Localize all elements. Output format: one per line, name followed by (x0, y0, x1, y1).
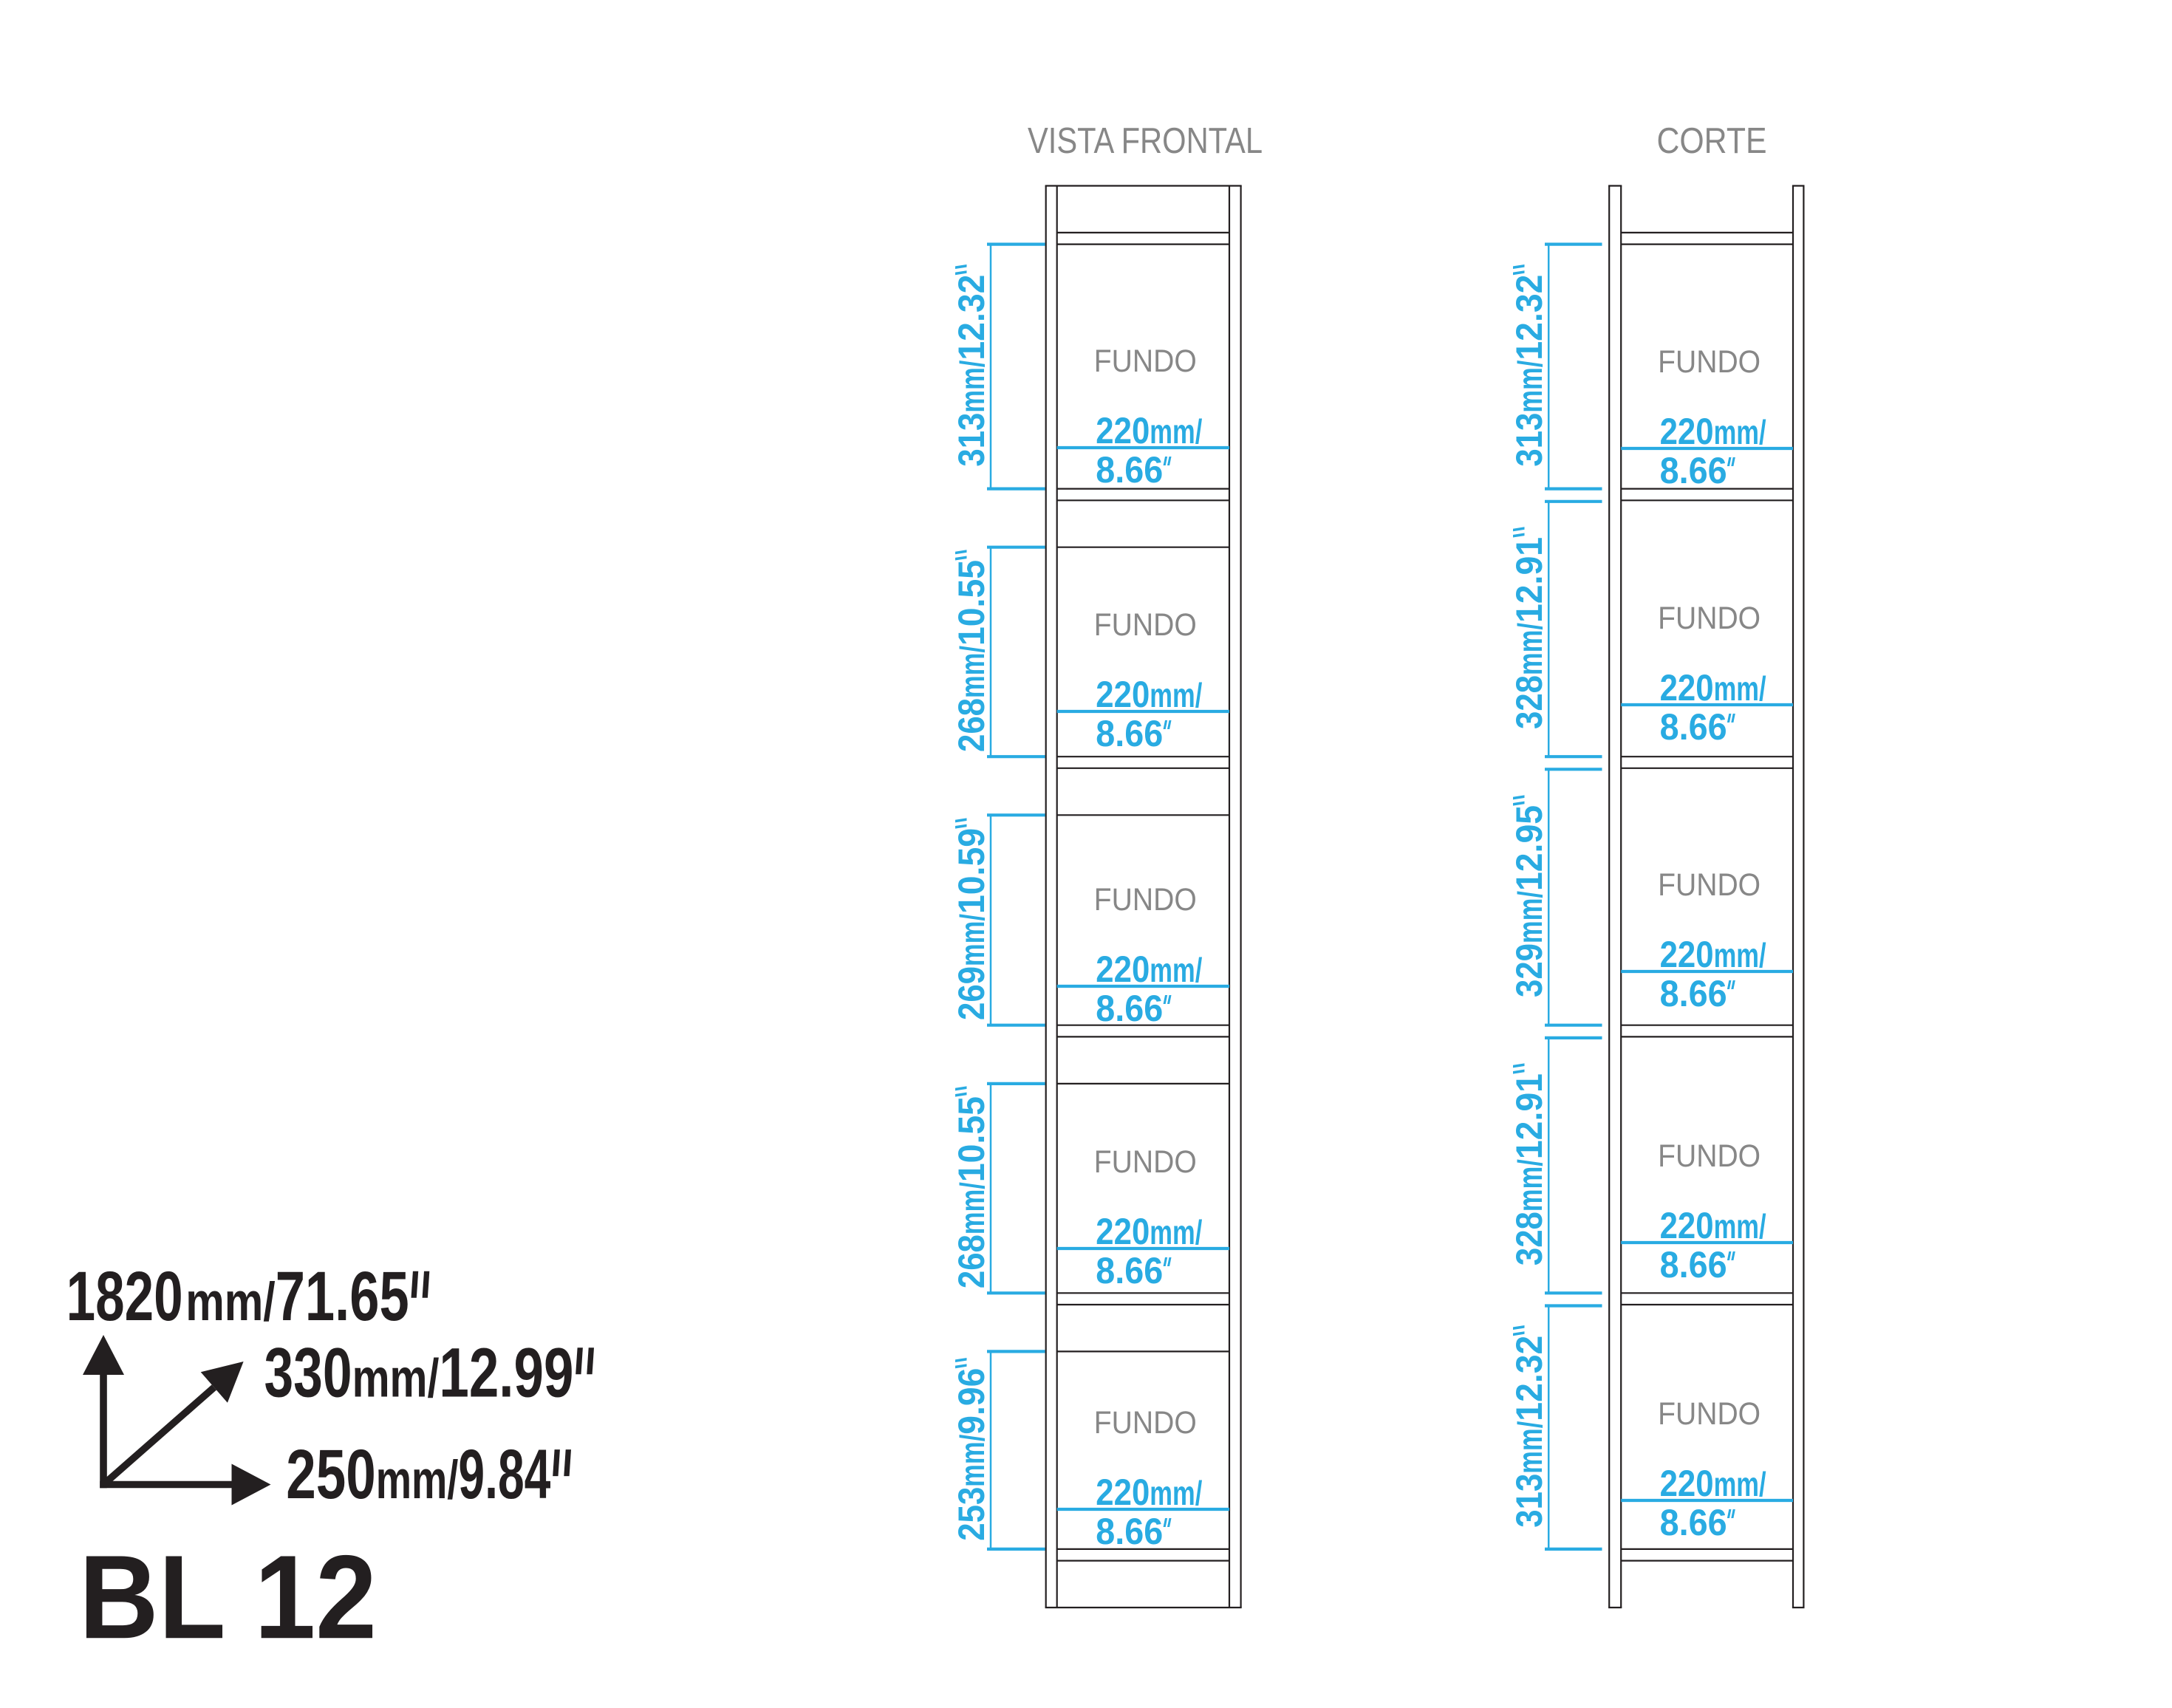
svg-text:220mm/: 220mm/ (1096, 410, 1202, 451)
svg-text:268mm/10.55: 268mm/10.55 (951, 1096, 992, 1288)
svg-text:220mm/: 220mm/ (1660, 934, 1766, 975)
svg-text:8.66: 8.66 (1660, 706, 1727, 748)
svg-text:220mm/: 220mm/ (1096, 1472, 1202, 1513)
svg-text:253mm/9.96: 253mm/9.96 (951, 1368, 992, 1541)
svg-text:8.66: 8.66 (1660, 1244, 1727, 1285)
svg-text:220mm/: 220mm/ (1096, 1211, 1202, 1252)
svg-text:220mm/: 220mm/ (1660, 667, 1766, 708)
svg-text:328mm/12.91: 328mm/12.91 (1509, 537, 1550, 729)
svg-text:269mm/10.59: 269mm/10.59 (951, 828, 992, 1020)
svg-text:mm/: mm/ (376, 1450, 459, 1510)
svg-text:FUNDO: FUNDO (1094, 344, 1197, 379)
svg-text:329mm/12.95: 329mm/12.95 (1509, 805, 1550, 997)
svg-text:8.66: 8.66 (1660, 1502, 1727, 1543)
svg-text:9.84: 9.84 (458, 1435, 550, 1514)
svg-text:8.66: 8.66 (1096, 449, 1163, 491)
svg-text:FUNDO: FUNDO (1094, 1144, 1197, 1180)
svg-text:268mm/10.55: 268mm/10.55 (951, 560, 992, 752)
svg-text:8.66: 8.66 (1660, 973, 1727, 1014)
svg-text:220mm/: 220mm/ (1096, 674, 1202, 715)
svg-text:VISTA FRONTAL: VISTA FRONTAL (1028, 121, 1263, 161)
svg-text:FUNDO: FUNDO (1094, 882, 1197, 918)
svg-text:220mm/: 220mm/ (1096, 949, 1202, 990)
svg-text:71.65: 71.65 (276, 1257, 409, 1336)
svg-text:mm/: mm/ (352, 1348, 440, 1408)
svg-text:330: 330 (264, 1333, 352, 1412)
svg-text:FUNDO: FUNDO (1658, 601, 1761, 636)
svg-text:FUNDO: FUNDO (1658, 1138, 1761, 1174)
svg-text:313mm/12.32: 313mm/12.32 (1509, 1336, 1550, 1528)
svg-text:313mm/12.32: 313mm/12.32 (951, 275, 992, 467)
svg-text:FUNDO: FUNDO (1658, 344, 1761, 380)
svg-text:220mm/: 220mm/ (1660, 1463, 1766, 1504)
svg-text:250: 250 (286, 1435, 376, 1514)
svg-text:CORTE: CORTE (1657, 121, 1767, 161)
svg-text:8.66: 8.66 (1096, 988, 1163, 1029)
svg-text:1820: 1820 (66, 1257, 183, 1336)
svg-text:BL 12: BL 12 (79, 1531, 377, 1664)
svg-text:FUNDO: FUNDO (1094, 607, 1197, 643)
svg-text:220mm/: 220mm/ (1660, 411, 1766, 452)
svg-text:313mm/12.32: 313mm/12.32 (1509, 275, 1550, 467)
svg-text:FUNDO: FUNDO (1094, 1405, 1197, 1441)
svg-text:8.66: 8.66 (1660, 450, 1727, 491)
svg-text:12.99: 12.99 (439, 1333, 573, 1412)
svg-text:FUNDO: FUNDO (1658, 1396, 1761, 1432)
svg-text:8.66: 8.66 (1096, 713, 1163, 754)
svg-text:328mm/12.91: 328mm/12.91 (1509, 1073, 1550, 1265)
svg-text:8.66: 8.66 (1096, 1250, 1163, 1291)
svg-text:220mm/: 220mm/ (1660, 1205, 1766, 1246)
svg-text:mm/: mm/ (185, 1272, 276, 1332)
svg-text:FUNDO: FUNDO (1658, 867, 1761, 903)
svg-text:8.66: 8.66 (1096, 1511, 1163, 1552)
